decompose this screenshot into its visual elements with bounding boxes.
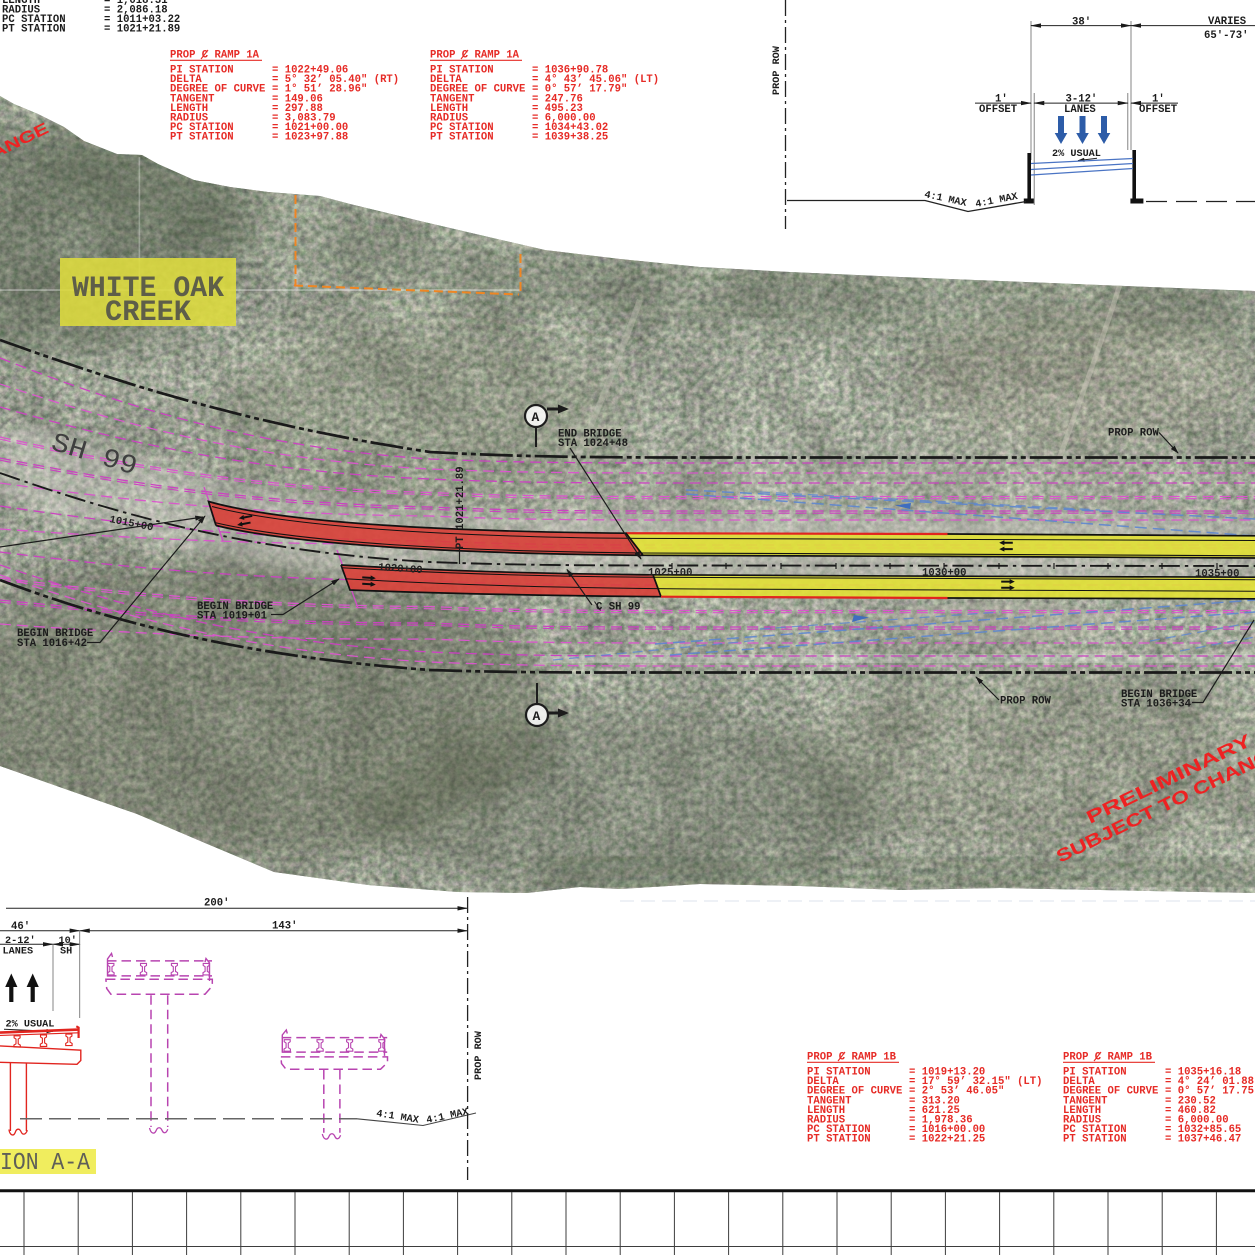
svg-text:PROP C RAMP 1A: PROP C RAMP 1A — [170, 50, 260, 62]
svg-text:C SH 99: C SH 99 — [596, 602, 641, 614]
svg-text:PT 1021+21.89: PT 1021+21.89 — [455, 466, 467, 549]
svg-text:2-12': 2-12' — [5, 935, 36, 947]
svg-text:A: A — [532, 410, 540, 425]
svg-text:1030+00: 1030+00 — [922, 568, 967, 580]
svg-text:STA 1019+01: STA 1019+01 — [197, 611, 267, 623]
svg-text:65'-73': 65'-73' — [1204, 30, 1249, 42]
svg-text:SH: SH — [60, 946, 72, 957]
svg-text:LANES: LANES — [3, 946, 34, 957]
svg-text:PT STATION: PT STATION — [1063, 1134, 1127, 1146]
svg-text:CREEK: CREEK — [105, 296, 191, 330]
svg-text:= 1023+97.88: = 1023+97.88 — [272, 132, 348, 144]
svg-text:1025+00: 1025+00 — [648, 568, 693, 580]
svg-text:STA 1036+34: STA 1036+34 — [1121, 699, 1192, 711]
svg-text:PT STATION: PT STATION — [170, 132, 234, 144]
svg-text:ION A-A: ION A-A — [0, 1150, 91, 1177]
svg-text:38': 38' — [1072, 17, 1091, 29]
svg-text:STA 1016+42: STA 1016+42 — [17, 638, 87, 650]
svg-text:PROP ROW: PROP ROW — [772, 45, 783, 95]
svg-text:2% USUAL: 2% USUAL — [6, 1020, 55, 1031]
svg-text:PROP ROW: PROP ROW — [474, 1030, 485, 1080]
svg-text:A: A — [533, 709, 541, 724]
svg-text:PROP C RAMP 1B: PROP C RAMP 1B — [807, 1052, 897, 1064]
svg-text:OFFSET: OFFSET — [1139, 104, 1178, 116]
svg-text:= 1039+38.25: = 1039+38.25 — [532, 132, 608, 144]
svg-text:PT STATION: PT STATION — [807, 1134, 871, 1146]
svg-text:VARIES: VARIES — [1208, 16, 1247, 28]
svg-text:LANES: LANES — [1064, 104, 1096, 116]
svg-text:OFFSET: OFFSET — [979, 104, 1018, 116]
svg-text:PT STATION: PT STATION — [430, 132, 494, 144]
svg-text:PROP ROW: PROP ROW — [1000, 696, 1052, 708]
svg-text:1035+00: 1035+00 — [1195, 569, 1240, 581]
svg-text:PROP ROW: PROP ROW — [1108, 428, 1160, 440]
svg-text:PROP C RAMP 1A: PROP C RAMP 1A — [430, 50, 520, 62]
svg-text:= 1021+21.89: = 1021+21.89 — [104, 23, 180, 35]
svg-text:10': 10' — [59, 935, 77, 947]
svg-text:PROP C RAMP 1B: PROP C RAMP 1B — [1063, 1052, 1153, 1064]
svg-text:= 1022+21.25: = 1022+21.25 — [909, 1134, 985, 1146]
svg-text:200': 200' — [204, 898, 229, 910]
svg-text:PT STATION: PT STATION — [2, 23, 66, 35]
svg-text:46': 46' — [11, 921, 30, 933]
svg-text:STA 1024+48: STA 1024+48 — [558, 438, 628, 450]
svg-text:= 1037+46.47: = 1037+46.47 — [1165, 1134, 1241, 1146]
svg-text:143': 143' — [272, 920, 297, 932]
